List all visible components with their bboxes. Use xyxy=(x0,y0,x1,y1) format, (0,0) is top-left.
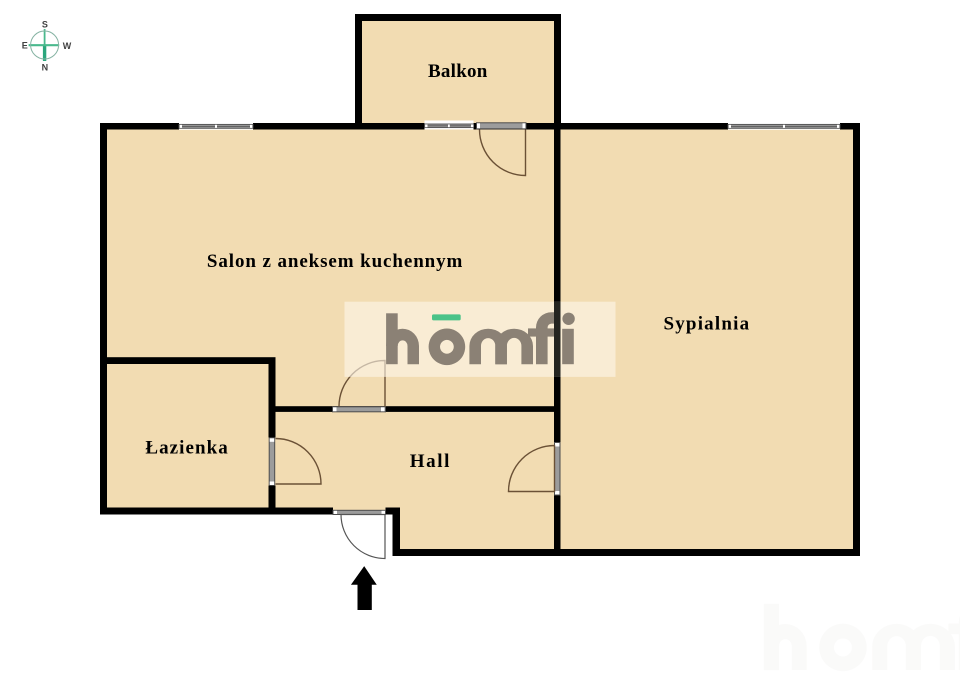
svg-text:S: S xyxy=(42,20,48,30)
svg-text:E: E xyxy=(22,41,28,51)
svg-text:Sypialnia: Sypialnia xyxy=(663,313,750,334)
svg-text:W: W xyxy=(63,41,72,51)
svg-text:Łazienka: Łazienka xyxy=(145,437,228,458)
svg-text:Hall: Hall xyxy=(410,451,451,472)
svg-text:Balkon: Balkon xyxy=(428,61,488,82)
svg-text:Salon z aneksem kuchennym: Salon z aneksem kuchennym xyxy=(207,251,463,272)
svg-text:N: N xyxy=(42,63,49,73)
